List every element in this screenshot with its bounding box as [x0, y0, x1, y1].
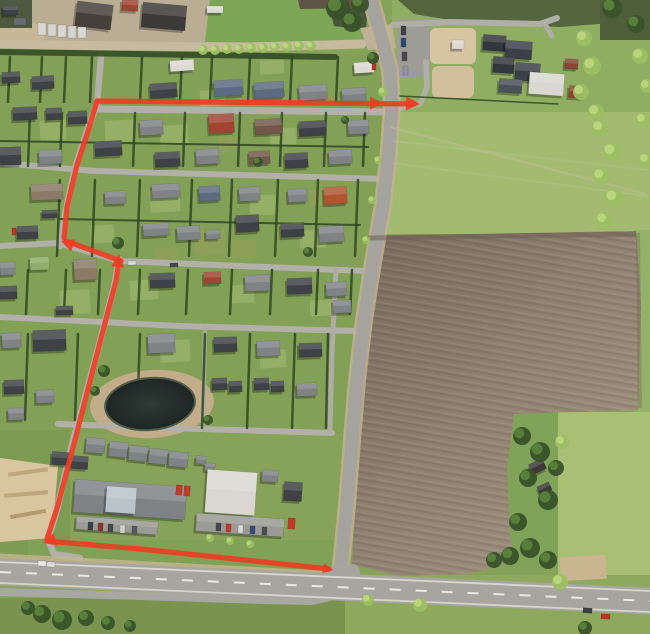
roof-highlight	[204, 272, 221, 278]
tree-highlight	[99, 366, 106, 373]
vehicle	[108, 524, 113, 532]
building	[251, 81, 284, 102]
roof-highlight	[254, 378, 269, 384]
building	[103, 486, 137, 517]
roof-highlight	[46, 108, 62, 114]
tree-highlight	[522, 540, 533, 551]
roof-highlight	[36, 390, 54, 396]
tree-highlight	[342, 117, 346, 121]
building	[205, 6, 223, 16]
building	[139, 2, 187, 33]
building	[153, 151, 181, 170]
roof-highlight	[122, 0, 138, 5]
roof-highlight	[2, 333, 21, 340]
tree-highlight	[606, 190, 616, 200]
roof-highlight	[239, 186, 260, 193]
tree-highlight	[22, 602, 30, 610]
building	[253, 118, 283, 137]
building	[30, 75, 55, 92]
roof-highlight	[348, 119, 369, 126]
roof-highlight	[52, 451, 69, 458]
building	[175, 225, 201, 243]
vehicle	[58, 25, 66, 37]
roof-highlight	[281, 222, 304, 229]
roof-highlight	[148, 334, 175, 343]
building	[234, 214, 260, 235]
building	[72, 259, 98, 283]
tree-highlight	[369, 197, 373, 201]
tree-highlight	[199, 46, 205, 52]
building	[0, 333, 21, 351]
tree-highlight	[247, 541, 251, 545]
screenshot-root	[0, 0, 650, 634]
roof-highlight	[0, 147, 21, 156]
vehicle	[78, 27, 86, 38]
terrain-patch	[559, 555, 606, 581]
building	[212, 337, 238, 355]
roof-highlight	[4, 380, 24, 387]
tree-highlight	[487, 553, 496, 562]
building	[148, 82, 178, 101]
roof-highlight	[207, 6, 223, 9]
tree-highlight	[235, 45, 241, 51]
roof-highlight	[196, 148, 219, 156]
building	[6, 408, 24, 423]
route-line	[97, 101, 414, 104]
building	[1, 6, 18, 18]
vehicle	[88, 522, 93, 530]
building	[148, 273, 176, 291]
tree-highlight	[510, 514, 520, 524]
building	[37, 150, 63, 167]
roof-highlight	[288, 189, 307, 196]
terrain-patch	[104, 119, 135, 143]
building	[496, 78, 522, 96]
vehicle	[12, 228, 16, 235]
roof-highlight	[0, 286, 17, 292]
building	[28, 257, 50, 273]
building	[346, 119, 370, 137]
roof-highlight	[95, 140, 122, 148]
building	[327, 149, 353, 167]
tree-highlight	[574, 85, 583, 94]
building	[11, 106, 38, 123]
roof-highlight	[212, 378, 227, 384]
building	[204, 230, 220, 242]
building	[322, 186, 348, 207]
roof-highlight	[17, 226, 38, 233]
building	[237, 186, 261, 204]
tree-highlight	[307, 42, 313, 48]
building	[168, 59, 195, 74]
roof-highlight	[333, 300, 351, 306]
roof-highlight	[245, 275, 270, 283]
tree-highlight	[102, 617, 110, 625]
roof-highlight	[255, 118, 282, 126]
building	[141, 222, 170, 239]
tree-highlight	[34, 606, 44, 616]
building	[324, 282, 348, 299]
building	[146, 334, 176, 356]
vehicle	[601, 614, 610, 619]
tree-highlight	[254, 158, 260, 164]
tree-highlight	[540, 492, 551, 503]
tree-highlight	[223, 45, 229, 51]
tree-highlight	[579, 622, 587, 630]
tree-highlight	[641, 80, 649, 88]
building	[15, 226, 39, 242]
building	[297, 120, 327, 139]
building	[138, 119, 164, 138]
building	[202, 469, 257, 518]
tree-highlight	[113, 238, 120, 245]
tree-highlight	[363, 595, 370, 602]
roof-highlight	[206, 230, 220, 235]
aerial-map	[0, 0, 650, 634]
tree-highlight	[375, 157, 379, 161]
vehicle	[216, 523, 221, 531]
roof-highlight	[74, 259, 97, 269]
roof-highlight	[271, 381, 284, 386]
building	[285, 278, 313, 297]
building	[286, 189, 308, 206]
roof-highlight	[30, 257, 49, 264]
building	[279, 222, 305, 240]
roof-highlight	[0, 262, 15, 268]
roof-highlight	[33, 329, 66, 340]
tree-highlight	[125, 621, 132, 628]
building	[146, 448, 169, 468]
tree-highlight	[633, 49, 642, 58]
building	[83, 437, 106, 457]
tree-highlight	[556, 436, 564, 444]
vehicle	[48, 24, 56, 36]
tree-highlight	[502, 548, 512, 558]
vehicle	[14, 18, 26, 25]
roof-highlight	[287, 278, 312, 286]
building	[197, 185, 221, 204]
building	[120, 0, 139, 14]
building	[255, 341, 281, 359]
building	[526, 72, 565, 99]
roof-highlight	[236, 214, 259, 223]
tree-highlight	[514, 428, 524, 438]
building	[490, 56, 514, 76]
tree-highlight	[91, 387, 97, 393]
building	[166, 451, 189, 471]
vehicle	[238, 525, 243, 533]
building	[202, 272, 221, 287]
building	[297, 343, 323, 360]
tree-highlight	[271, 43, 277, 49]
building	[93, 140, 123, 159]
vehicle	[402, 52, 407, 61]
building	[295, 383, 318, 399]
tree-highlight	[363, 237, 367, 241]
vehicle	[38, 561, 46, 566]
vehicle	[288, 518, 296, 529]
building	[29, 183, 64, 203]
roof-highlight	[284, 481, 303, 491]
building	[283, 152, 309, 171]
tree-highlight	[207, 535, 211, 539]
roof-highlight	[32, 75, 54, 82]
roof-highlight	[199, 185, 220, 193]
roof-highlight	[324, 186, 347, 195]
vehicle	[401, 26, 406, 35]
roof-highlight	[177, 225, 200, 232]
roof-highlight	[8, 408, 24, 414]
building	[450, 40, 464, 52]
tree-highlight	[283, 43, 289, 49]
roof-highlight	[262, 469, 278, 476]
roof-highlight	[71, 455, 88, 462]
tree-highlight	[593, 121, 602, 130]
roof-highlight	[229, 381, 242, 386]
terrain-patch	[310, 299, 333, 316]
building	[207, 113, 235, 136]
building	[31, 329, 67, 354]
building	[0, 147, 21, 168]
vehicle	[583, 608, 592, 613]
building	[2, 380, 25, 397]
roof-highlight	[565, 59, 578, 64]
tree-highlight	[604, 0, 615, 11]
road-marking	[638, 233, 640, 408]
vehicle	[132, 526, 137, 534]
tree-highlight	[379, 88, 385, 94]
vehicle	[128, 261, 136, 265]
tree-highlight	[54, 612, 65, 623]
building	[317, 225, 345, 245]
roof-highlight	[3, 6, 18, 10]
roof-highlight	[106, 486, 137, 500]
terrain-patch	[432, 66, 474, 98]
building	[103, 191, 127, 207]
tree-highlight	[553, 575, 562, 584]
vehicle	[38, 23, 46, 35]
building	[54, 306, 73, 318]
roof-highlight	[297, 383, 317, 390]
building	[106, 441, 129, 461]
terrain-patch	[155, 247, 178, 260]
tree-highlight	[414, 599, 422, 607]
tree-highlight	[368, 53, 375, 60]
vehicle	[372, 64, 376, 70]
vehicle	[170, 263, 178, 267]
roof-highlight	[299, 343, 322, 350]
tree-highlight	[247, 44, 253, 50]
tree-highlight	[211, 46, 217, 52]
tree-highlight	[549, 461, 558, 470]
tree-highlight	[344, 14, 355, 25]
roof-highlight	[329, 149, 352, 156]
tree-highlight	[637, 114, 645, 122]
vehicle	[98, 523, 103, 531]
tree-highlight	[604, 144, 614, 154]
tree-highlight	[520, 470, 530, 480]
vehicle	[262, 527, 267, 535]
vehicle	[250, 526, 255, 534]
tree-highlight	[628, 16, 638, 26]
vehicle	[403, 66, 408, 75]
building	[194, 148, 220, 167]
tree-highlight	[540, 552, 550, 562]
building	[480, 34, 506, 54]
roof-highlight	[150, 273, 175, 281]
roof-highlight	[155, 151, 180, 159]
roof-highlight	[299, 120, 326, 128]
roof-highlight	[2, 72, 20, 78]
building	[126, 445, 149, 465]
tree-highlight	[227, 538, 231, 542]
building	[0, 262, 15, 278]
roof-highlight	[319, 225, 344, 233]
vehicle	[184, 486, 191, 496]
roof-highlight	[326, 282, 347, 289]
roof-highlight	[209, 113, 234, 123]
tree-highlight	[640, 154, 648, 162]
roof-highlight	[56, 306, 73, 311]
tree-highlight	[597, 213, 606, 222]
terrain-patch	[218, 134, 239, 149]
building	[0, 286, 17, 302]
road	[330, 572, 352, 575]
roof-highlight	[257, 341, 280, 349]
building	[211, 79, 243, 100]
building	[44, 108, 63, 123]
roof-highlight	[249, 150, 270, 157]
roof-highlight	[42, 210, 57, 214]
terrain-patch	[260, 59, 285, 74]
building	[227, 381, 242, 395]
tree-highlight	[594, 169, 603, 178]
tree-highlight	[589, 105, 598, 114]
vehicle	[401, 38, 406, 47]
building	[269, 381, 284, 395]
roof-highlight	[105, 191, 126, 198]
building	[66, 111, 88, 128]
building	[40, 210, 57, 221]
tree-highlight	[532, 444, 543, 455]
terrain-patch	[230, 239, 257, 258]
roof-highlight	[68, 111, 87, 118]
vehicle	[226, 524, 231, 532]
tree-highlight	[584, 58, 594, 68]
roof-highlight	[285, 152, 308, 160]
road	[95, 109, 390, 112]
vehicle	[68, 26, 76, 38]
building	[281, 481, 302, 504]
roof-highlight	[39, 150, 62, 157]
building	[0, 72, 20, 87]
vehicle	[47, 562, 55, 567]
tree-highlight	[304, 248, 310, 254]
tree-highlight	[259, 44, 265, 50]
roof-highlight	[214, 337, 237, 345]
roof-highlight	[206, 469, 257, 492]
tree-highlight	[295, 42, 301, 48]
tree-highlight	[577, 31, 586, 40]
roof-highlight	[140, 119, 163, 127]
building	[34, 390, 55, 406]
building	[210, 378, 227, 393]
roof-highlight	[452, 40, 464, 44]
building	[243, 275, 271, 294]
building	[252, 378, 269, 393]
building	[331, 300, 352, 316]
tree-highlight	[204, 416, 210, 422]
vehicle	[120, 525, 125, 533]
building	[150, 183, 181, 201]
roof-highlight	[31, 183, 63, 191]
tree-highlight	[79, 611, 88, 620]
roof-highlight	[493, 56, 514, 65]
vehicle	[176, 485, 183, 495]
